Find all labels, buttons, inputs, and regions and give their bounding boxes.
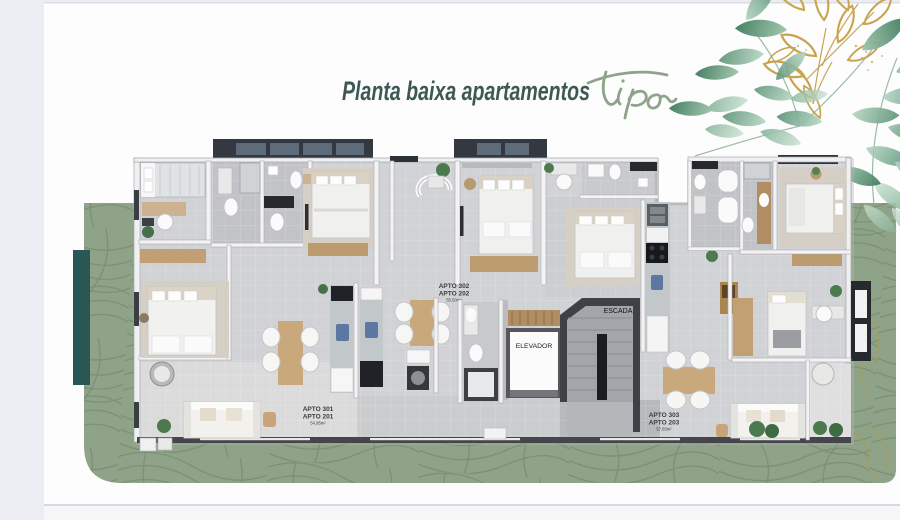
svg-text:ELEVADOR: ELEVADOR (516, 343, 553, 350)
svg-text:APTO 201: APTO 201 (303, 414, 334, 421)
svg-text:APTO 301: APTO 301 (303, 406, 334, 413)
svg-text:ESCADA: ESCADA (604, 308, 633, 315)
svg-text:57,65m²: 57,65m² (656, 427, 672, 432)
svg-text:APTO 303: APTO 303 (649, 412, 680, 419)
svg-text:APTO 302: APTO 302 (439, 283, 470, 290)
svg-text:APTO 202: APTO 202 (439, 291, 470, 298)
svg-text:APTO 203: APTO 203 (649, 420, 680, 427)
svg-text:54,95m²: 54,95m² (310, 421, 326, 426)
